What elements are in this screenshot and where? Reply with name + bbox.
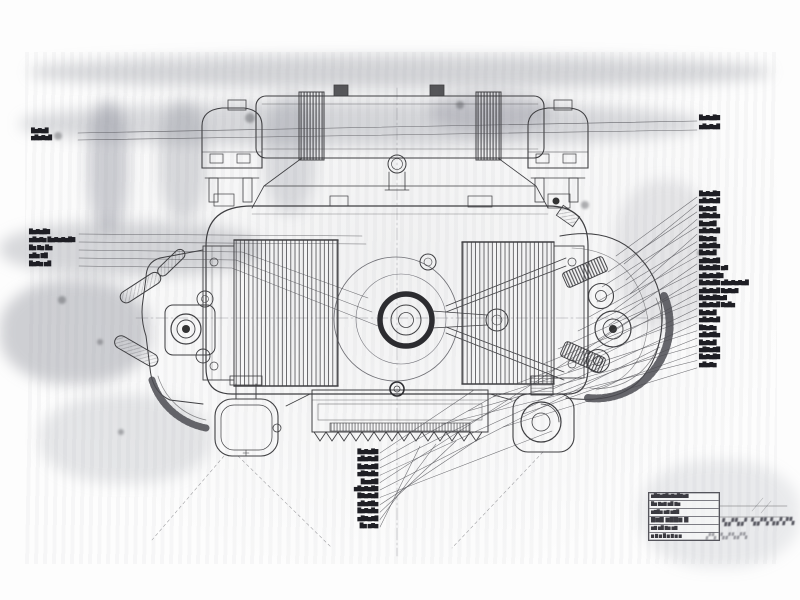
leader-line <box>608 212 697 272</box>
leader-line <box>602 227 697 287</box>
handwritten-note-2: ▞▚ ▚▞▚▞▚ <box>705 533 748 541</box>
part-label: ▆█▇▆▇█ <box>699 259 720 264</box>
part-label: ▆█▆▇▆█▇ <box>354 487 378 492</box>
leader-line <box>152 456 224 540</box>
oil-sump <box>286 382 512 441</box>
part-label: █▆▇▆█▇ <box>699 355 720 360</box>
leader-line <box>543 301 697 364</box>
part-label: ▆█▆▇▆█ ▇▆▇▆▇ <box>699 289 738 294</box>
part-label: █▆ ▇▆ █▆ <box>29 246 52 251</box>
part-label: █▆▆▇█ <box>699 222 716 227</box>
part-label: ▆█▆▇▆█ ▇▆█▆ <box>699 303 735 308</box>
leader-line <box>79 234 362 236</box>
title-block-row: █▆ ▇▆▇ ▆█ ▇▆ <box>649 501 719 509</box>
part-label: █▆ ▆▇▆ <box>360 524 378 529</box>
leader-line <box>380 398 519 468</box>
cylinder-right <box>462 242 584 384</box>
handwritten-note: ▚▞▚▞ ▚▞▚▚▞▞▚ <box>721 517 796 526</box>
leader-line <box>238 456 332 548</box>
part-label: ▆█▆▇█▆ <box>357 502 378 507</box>
title-block-row: █▆▇ ▆█▇▆ ▇ <box>649 517 719 525</box>
carburetor-left <box>202 108 262 206</box>
leader-line <box>380 441 456 512</box>
part-label: █▆▇▆▇█ <box>357 465 378 470</box>
cylinder-left <box>203 240 338 386</box>
part-label: ▆█▇▆▇█ <box>357 517 378 522</box>
part-label: █▆▇▆█▇ <box>29 230 50 235</box>
leader-line <box>78 130 697 140</box>
title-block-row: ▆█▇▆▇█▆▇▆█▇▆▇ <box>649 493 719 501</box>
leader-line <box>380 390 474 453</box>
part-label: ▆█▆▇█▆ <box>699 244 720 249</box>
part-label: █▆▇▆█ <box>699 251 716 256</box>
timing-cover-right <box>560 234 670 400</box>
part-label: ▆█▆▇▆█ <box>699 318 720 323</box>
part-label: █▆▇▆█▇ ▆▇ <box>699 266 728 271</box>
part-label: █▆▇▆ ▆█ <box>29 262 51 267</box>
part-label: █▆▇▆█▇ <box>357 450 378 455</box>
leader-line <box>380 444 436 520</box>
part-label: █▆▇▆█▇▆▇ <box>699 296 727 301</box>
end-cover-left <box>112 247 206 428</box>
part-label: ▆█▇▆▇█ <box>699 348 720 353</box>
leader-line <box>452 452 543 548</box>
part-label: ▆█▆▇▆█ <box>357 457 378 462</box>
leader-line <box>78 121 697 133</box>
leader-line <box>578 271 697 331</box>
part-label: █▆▆▇█ <box>361 480 378 485</box>
part-label: ▆█▆▇▆█▇ <box>699 274 723 279</box>
part-label: █▆▇▆█▆ <box>357 509 378 514</box>
part-label: ▆█▇▆█▆ <box>357 472 378 477</box>
part-label: ▆█▆▇▆█ <box>699 229 720 234</box>
part-label: ▆█▆▇▆█ <box>699 125 720 130</box>
part-label: ▆█▆▇▆█ <box>31 136 52 141</box>
leader-line <box>380 402 540 475</box>
leader-line <box>380 438 480 505</box>
leader-line <box>624 204 697 264</box>
leader-line <box>752 498 763 511</box>
part-label: ▆█▆▇▆ █▆▇▆▇▆█▇ <box>29 238 75 243</box>
part-label: █▆▇▆█▇ ▆█▆▇▆▇▆█ <box>699 281 748 286</box>
leader-lines <box>78 121 787 548</box>
part-label: █▆▇▆█ <box>31 129 48 134</box>
scanned-drawing-sheet: █▆▇▆█▆█▆▇▆█ █▆▇▆█▇▆█▆▇▆ █▆▇▆▇▆█▇█▆ ▇▆ █▆… <box>0 0 800 600</box>
part-label: █▆▇▆█▇ <box>699 116 720 121</box>
part-label: ▆█▆▇▆█ <box>699 199 720 204</box>
part-label: █▇▆▇▆ <box>699 237 716 242</box>
part-label: █▆▇▆▇ <box>699 207 716 212</box>
engine-mount-left <box>215 376 281 456</box>
part-label: ▆█▆▇█▆ <box>699 333 720 338</box>
part-label: ▆█▆▇▆ <box>699 363 716 368</box>
title-block-row: ▆▇ ▆█ ▇▆ ▆▇ <box>649 525 719 533</box>
leader-line <box>626 219 697 280</box>
part-label: ▆█▆ ▇█ <box>29 254 47 259</box>
carburetor-right <box>528 108 588 227</box>
part-label: ▆█▇▆█▆ <box>699 214 720 219</box>
part-label: █▆▇▆█▇ <box>699 192 720 197</box>
title-block-row: ▆▇█▆ ▆▇ ▆▇█ <box>649 509 719 517</box>
leader-line <box>609 264 697 325</box>
leader-line <box>616 197 697 256</box>
part-label: █▆▇▆█ <box>699 341 716 346</box>
leader-line <box>761 501 771 513</box>
intake-plenum <box>228 85 572 208</box>
part-label: █▇▆▇▆ <box>699 326 716 331</box>
part-label: █▆▇▆█ <box>699 311 716 316</box>
leader-line <box>380 446 420 527</box>
part-label: █▇▆▇▆█ <box>357 494 378 499</box>
